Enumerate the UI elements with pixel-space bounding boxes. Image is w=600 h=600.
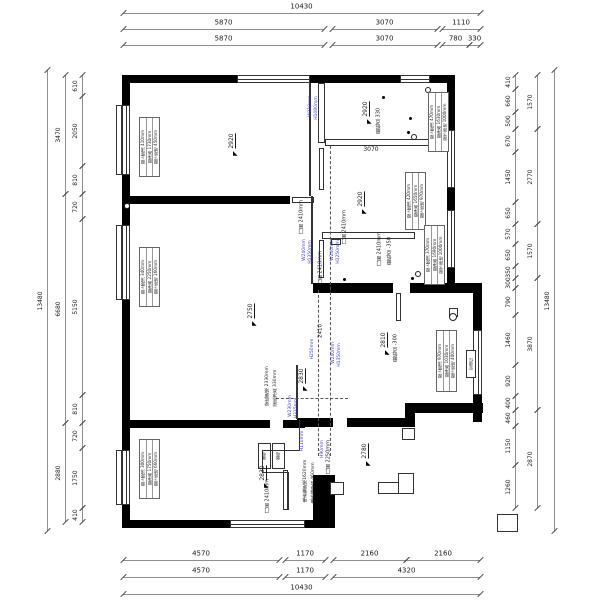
dimension-label: 920 [506, 375, 512, 386]
window-info-line: 窗下距地 970mm [420, 184, 424, 218]
dimension-label: 13480 [545, 291, 551, 310]
dimension-label: 570 [506, 228, 512, 239]
dimension-label: 410 [73, 509, 79, 520]
dimension-label: 460 [506, 412, 512, 423]
height-leader-arrow: ◣ [385, 350, 390, 356]
dimension-line [123, 560, 279, 561]
dimension-label: 500 [506, 115, 512, 126]
dimension-line [82, 423, 83, 448]
height-leader-arrow: ◣ [303, 386, 308, 392]
weak-elec-box-label: 弱电 [276, 452, 280, 460]
window-info-cell: 窗下距地 1000mm [438, 226, 444, 284]
window-info-line: 窗上距顶 300mm [141, 452, 145, 486]
internal-dim-3070: 3070 [363, 147, 378, 153]
beam-size-label: H1350mm [338, 343, 343, 367]
dimension-label: 1450 [506, 169, 512, 184]
window-info-cell: 窗下距地 450mm [153, 118, 159, 176]
ac-unit-label: 空调位 [469, 358, 473, 370]
dimension-line [515, 426, 516, 465]
dimension-line [82, 166, 83, 194]
dimension-label: 5870 [215, 36, 233, 43]
window-info-cell: 窗下距地 400mm [450, 331, 456, 391]
beam-note-label: 梁底距地 2330mm [266, 366, 271, 406]
window-info-cell: 窗下距地 660mm [153, 440, 159, 498]
ceiling-height-bedroom1: 2920 [229, 133, 235, 148]
dimension-label: 5150 [73, 299, 79, 314]
window-info-cell: 窗下距地 970mm [419, 173, 425, 229]
dimension-line [537, 75, 538, 129]
window-info-cell: 窗上距顶 420mm [406, 173, 413, 229]
plan-annotation-layer: 1043058703070111058703070780330457011702… [0, 0, 600, 600]
window-info-cell: 窗上距顶 300mm [140, 440, 147, 498]
dimension-label: 4320 [398, 568, 416, 575]
dimension-line [515, 89, 516, 112]
floor-plan: 1043058703070111058703070780330457011702… [0, 0, 600, 600]
dimension-label: 790 [506, 296, 512, 307]
min-point-bath: 最低点 330 [377, 108, 382, 134]
dimension-line [515, 129, 516, 152]
dimension-label: 350 [506, 266, 512, 277]
window-info-line: 窗上距顶 340mm [141, 260, 145, 294]
ceiling-height-living: 2750 [248, 303, 254, 318]
dimension-label: 650 [506, 249, 512, 260]
window-info-line: 窗净高 1690mm [432, 239, 436, 272]
window-info-dining: 窗上距顶 970mm窗净高 1030mm窗下距地 400mm [436, 330, 457, 392]
window-info-line: 窗下距地 450mm [154, 130, 158, 164]
dimension-label: 1150 [506, 438, 512, 453]
height-leader-arrow: ◣ [367, 119, 372, 125]
beam-size-label: H110mm [301, 431, 306, 452]
door-height-label: 门高 2410mm [343, 210, 348, 244]
dimension-label: 3070 [376, 20, 394, 27]
dimension-label: 410 [506, 76, 512, 87]
dimension-label: 300 [506, 277, 512, 288]
dimension-label: 2160 [361, 551, 379, 558]
door-height-label: 门高 2410mm [319, 251, 324, 285]
dimension-line [515, 365, 516, 396]
dimension-line [515, 152, 516, 202]
dimension-label: 10430 [290, 4, 312, 11]
dimension-line [65, 194, 66, 423]
dimension-line [285, 560, 325, 561]
corridor-dim: 2410 [318, 324, 324, 338]
window-info-line: 窗净高 2250mm [147, 261, 151, 294]
dimension-line [537, 410, 538, 508]
height-leader-arrow: ◣ [233, 151, 238, 157]
dimension-label: 4570 [192, 568, 210, 575]
dimension-label: 1570 [528, 243, 534, 258]
dimension-label: 2870 [528, 451, 534, 466]
dimension-label: 1260 [506, 479, 512, 494]
door-height-label: 门高 2410mm [266, 479, 271, 513]
ceiling-height-bath: 2920 [363, 101, 369, 116]
window-info-line: 窗下距地 400mm [451, 344, 455, 378]
beam-note-label: 梁底净高 330mm [274, 370, 279, 407]
dimension-label: 6680 [56, 301, 62, 316]
dimension-line [537, 129, 538, 224]
min-point-room-b: 最低点 -350 [388, 237, 393, 265]
window-info-cell: 窗上距顶 370mm [425, 226, 432, 284]
height-leader-arrow: ◣ [366, 461, 371, 467]
meter-box-size-label: 电表箱净高 460mm [312, 462, 317, 503]
dimension-label: 1750 [73, 470, 79, 485]
dimension-label: 780 [449, 36, 462, 43]
window-info-bedroom1: 窗上距顶 410mm窗净高 1730mm窗下距地 450mm [139, 117, 160, 177]
dimension-label: 2770 [528, 169, 534, 184]
window-info-bath: 窗上距顶 470mm窗净高 1630mm窗下距地 1000mm [428, 92, 449, 152]
window-info-line: 窗净高 1650mm [413, 185, 417, 218]
dimension-label: 3870 [528, 336, 534, 351]
dimension-line [65, 423, 66, 522]
dimension-line [123, 577, 279, 578]
meter-box-height-label: 电表箱距地1620mm [304, 460, 309, 503]
beam-size-label: H335mm [295, 398, 300, 419]
dimension-line [515, 288, 516, 315]
window-info-line: 窗上距顶 420mm [407, 184, 411, 218]
ceiling-height-dining: 2810 [381, 332, 387, 347]
height-leader-arrow: ◣ [362, 209, 367, 215]
window-info-cell: 窗下距地 160mm [153, 248, 159, 306]
dimension-label: 810 [73, 174, 79, 185]
dimension-label: 1170 [296, 551, 314, 558]
min-point-dining: 最低点 -300 [394, 334, 399, 362]
door-height-label: 门高 2410mm [300, 200, 305, 234]
dimension-label: 810 [73, 403, 79, 414]
dimension-line [332, 45, 437, 46]
dimension-line [554, 70, 555, 531]
dimension-line [333, 560, 406, 561]
window-info-cell: 窗上距顶 470mm [429, 93, 436, 151]
dimension-label: 1170 [296, 568, 314, 575]
dimension-line [515, 315, 516, 365]
dimension-label: 3070 [376, 36, 394, 43]
dimension-line [285, 577, 325, 578]
strong-elec-box-label: 强电 [262, 452, 266, 460]
window-info-line: 窗净高 1630mm [436, 106, 440, 139]
window-info-line: 窗上距顶 410mm [141, 130, 145, 164]
window-info-room-b-top: 窗上距顶 420mm窗净高 1650mm窗下距地 970mm [405, 172, 426, 230]
dimension-label: 2880 [56, 465, 62, 480]
window-info-cell: 窗上距顶 340mm [140, 248, 147, 306]
dimension-line [123, 29, 324, 30]
window-info-line: 窗净高 1030mm [444, 345, 448, 378]
dimension-line [332, 29, 437, 30]
dimension-label: 5870 [215, 20, 233, 27]
door-height-label: 门高 2250mm [327, 440, 332, 474]
window-info-line: 窗下距地 660mm [154, 452, 158, 486]
dimension-label: 720 [73, 201, 79, 212]
dimension-line [82, 219, 83, 395]
dimension-line [406, 560, 480, 561]
dimension-label: 660 [506, 95, 512, 106]
window-info-living: 窗上距顶 340mm窗净高 2250mm窗下距地 160mm [139, 247, 160, 307]
dimension-label: 2050 [73, 123, 79, 138]
window-info-line: 窗下距地 1000mm [439, 237, 443, 274]
dimension-label: 3470 [56, 127, 62, 142]
dimension-line [82, 96, 83, 166]
ceiling-height-hall: 2830 [299, 368, 305, 383]
window-info-cell: 窗下距地 1000mm [442, 93, 448, 151]
dimension-label: 650 [506, 207, 512, 218]
window-info-line: 窗下距地 1000mm [443, 104, 447, 141]
window-info-line: 窗净高 1750mm [147, 453, 151, 486]
dimension-label: 1570 [528, 94, 534, 109]
dimension-label: 670 [506, 135, 512, 146]
dimension-line [123, 594, 480, 595]
window-info-line: 窗上距顶 370mm [426, 238, 430, 272]
dimension-label: 13480 [38, 291, 44, 310]
dimension-label: 400 [506, 397, 512, 408]
ceiling-height-balcony: 2780 [362, 443, 368, 458]
dimension-line [333, 577, 480, 578]
height-leader-arrow: ◣ [252, 321, 257, 327]
dimension-label: 330 [468, 36, 481, 43]
dimension-label: 1460 [506, 332, 512, 347]
beam-size-label: H1250mm [337, 240, 342, 264]
dimension-line [537, 278, 538, 410]
dimension-line [515, 465, 516, 508]
dimension-label: 1110 [452, 20, 470, 27]
beam-size-label: H90mm [321, 440, 326, 458]
window-info-line: 窗上距顶 970mm [438, 344, 442, 378]
dimension-line [515, 202, 516, 224]
dimension-label: 2160 [434, 551, 452, 558]
dimension-line [65, 75, 66, 194]
window-info-room-b: 窗上距顶 370mm窗净高 1690mm窗下距地 1000mm [424, 225, 445, 285]
dimension-line [123, 45, 324, 46]
dimension-label: 4570 [192, 551, 210, 558]
dimension-line [47, 70, 48, 531]
window-info-cell: 窗上距顶 970mm [437, 331, 444, 391]
dimension-line [82, 75, 83, 96]
window-info-bedroom2: 窗上距顶 300mm窗净高 1750mm窗下距地 660mm [139, 439, 160, 499]
dimension-line [442, 29, 480, 30]
door-height-label: 门高 2410mm [378, 232, 383, 266]
beam-size-label: H1080mm [315, 96, 320, 120]
dimension-line [82, 194, 83, 219]
dimension-line [82, 395, 83, 423]
dimension-label: 610 [73, 80, 79, 91]
beam-size-label: H250mm [311, 339, 316, 360]
dimension-line [537, 224, 538, 278]
dimension-label: 720 [73, 430, 79, 441]
window-info-line: 窗下距地 160mm [154, 260, 158, 294]
dimension-label: 10430 [290, 585, 312, 592]
beam-size-label: H1350mm [309, 240, 314, 264]
ceiling-height-room-b: 2920 [358, 191, 364, 206]
dimension-line [82, 448, 83, 508]
window-info-line: 窗净高 1730mm [147, 131, 151, 164]
dimension-line [123, 13, 480, 14]
window-info-cell: 窗上距顶 410mm [140, 118, 147, 176]
dimension-line [515, 244, 516, 266]
window-info-line: 窗上距顶 470mm [430, 105, 434, 139]
dimension-line [442, 45, 469, 46]
